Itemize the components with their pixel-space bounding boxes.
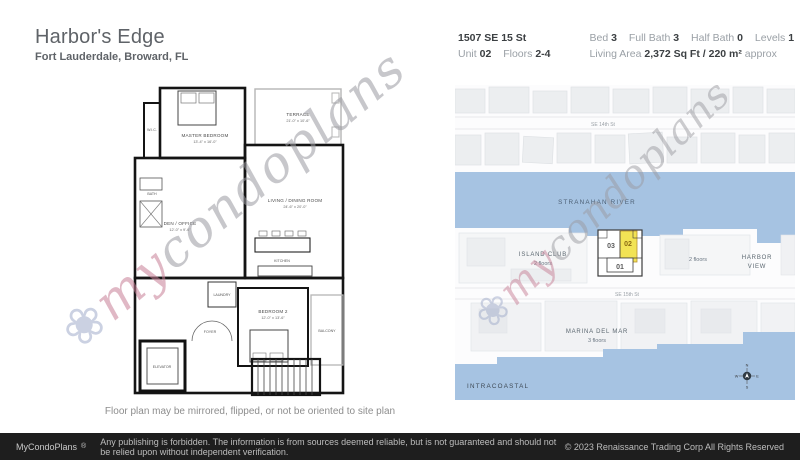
neighbor-floors: 2 floors — [689, 257, 707, 263]
harbor-view-line1: HARBOR — [742, 255, 772, 261]
kitchen-counter — [258, 266, 312, 276]
room-dims-master: 13'-4" x 16'-0" — [193, 140, 217, 144]
registered-mark: ® — [81, 443, 86, 450]
bed-label: Bed — [590, 32, 609, 44]
levels-label: Levels — [755, 32, 785, 44]
unit-info-block: 1507 SE 15 St Unit 02 Floors 2-4 Bed 3 F… — [458, 30, 800, 63]
page-title: Harbor's Edge — [35, 26, 188, 49]
compass-n: N — [746, 364, 749, 368]
compass-e: E — [756, 375, 759, 379]
island-club-block — [459, 233, 587, 283]
room-dims-living: 24'-6" x 20'-0" — [283, 205, 307, 209]
living-walls — [245, 145, 343, 278]
full-bath-value: 3 — [673, 32, 679, 44]
room-dims-terrace: 21'-0" x 10'-6" — [286, 119, 310, 123]
half-bath-label: Half Bath — [691, 32, 734, 44]
footer-bar: MyCondoPlans ® Any publishing is forbidd… — [0, 433, 800, 460]
room-label-balcony: BALCONY — [318, 329, 336, 333]
unit-03-label: 03 — [607, 243, 615, 250]
title-block: Harbor's Edge Fort Lauderdale, Broward, … — [35, 26, 188, 63]
bed2-icon — [250, 330, 288, 362]
footer-brand: MyCondoPlans — [16, 442, 77, 452]
floors-label: Floors — [503, 48, 532, 60]
plan-caption: Floor plan may be mirrored, flipped, or … — [100, 406, 400, 417]
harbor-view-line2: VIEW — [748, 264, 767, 270]
unit-label: Unit — [458, 48, 477, 60]
unit-value: 02 — [480, 48, 492, 60]
island-club-name: ISLAND CLUB — [519, 252, 567, 258]
room-label-living: LIVING / DINING ROOM — [268, 198, 323, 203]
buildings-row-two — [455, 132, 795, 165]
intracoastal-label: INTRACOASTAL — [467, 383, 529, 390]
floorplan-sheet: Harbor's Edge Fort Lauderdale, Broward, … — [0, 0, 800, 460]
room-label-master: MASTER BEDROOM — [182, 133, 229, 138]
living-area-metric: / 220 m² — [703, 48, 742, 60]
footer-disclaimer: Any publishing is forbidden. The informa… — [100, 437, 565, 457]
stats-column: Bed 3 Full Bath 3 Half Bath 0 Levels 1 L… — [590, 30, 800, 63]
terrace-outline — [255, 89, 341, 145]
unit-02-label: 02 — [624, 241, 632, 248]
room-dims-bedroom2: 12'-0" x 13'-6" — [261, 316, 285, 320]
levels-value: 1 — [788, 32, 794, 44]
site-map: SE 14th St STRANAHAN RIVER ISLAND CLUB 2… — [455, 85, 795, 400]
floor-plan-drawing: MASTER BEDROOM 13'-4" x 16'-0" TERRACE 2… — [130, 83, 345, 398]
street-label-se14: SE 14th St — [591, 122, 616, 128]
living-area-value: 2,372 Sq Ft — [644, 48, 699, 60]
marina-name: MARINA DEL MAR — [566, 329, 628, 335]
room-label-laundry: LAUNDRY — [213, 293, 231, 297]
footer-copyright: © 2023 Renaissance Trading Corp All Righ… — [565, 442, 784, 452]
half-bath-value: 0 — [737, 32, 743, 44]
page-subtitle: Fort Lauderdale, Broward, FL — [35, 51, 188, 63]
terrace-pier — [332, 127, 339, 137]
full-bath-label: Full Bath — [629, 32, 670, 44]
stool-icon — [272, 231, 280, 236]
stool-icon — [298, 231, 306, 236]
stair-treads — [258, 359, 312, 395]
stool-icon — [259, 231, 267, 236]
terrace-pier — [332, 93, 339, 103]
compass-w: W — [735, 375, 739, 379]
room-label-elevator: ELEVATOR — [153, 365, 172, 369]
stairs-outline — [252, 359, 320, 395]
room-label-bath: BATH — [147, 192, 157, 196]
floors-value: 2-4 — [535, 48, 550, 60]
living-area-approx: approx — [745, 48, 777, 60]
vanity-icon — [140, 178, 162, 190]
bed-value: 3 — [611, 32, 617, 44]
buildings-row-north — [455, 87, 795, 113]
room-label-bedroom2: BEDROOM 2 — [258, 309, 288, 314]
bed-icon — [178, 91, 216, 125]
island-club-floors: 2 floors — [534, 261, 552, 267]
den-bath-walls — [135, 158, 245, 278]
stats-row: Bed 3 Full Bath 3 Half Bath 0 Levels 1 — [590, 30, 800, 46]
compass-s: S — [746, 386, 749, 390]
site-map-drawing: SE 14th St STRANAHAN RIVER ISLAND CLUB 2… — [455, 85, 795, 400]
room-label-kitchen: KITCHEN — [274, 259, 290, 263]
room-label-wic: W.I.C. — [147, 128, 157, 132]
unit-01-label: 01 — [616, 264, 624, 271]
marina-floors: 3 floors — [588, 338, 606, 344]
kitchen-island — [255, 238, 310, 252]
address: 1507 SE 15 St — [458, 32, 526, 44]
subject-building: 03 02 01 — [598, 230, 642, 276]
room-label-foyer: FOYER — [204, 330, 217, 334]
flower-icon: ❀ — [49, 288, 120, 361]
floor-plan: MASTER BEDROOM 13'-4" x 16'-0" TERRACE 2… — [130, 83, 345, 401]
stool-icon — [285, 231, 293, 236]
room-dims-den: 12'-0" x 9'-6" — [169, 228, 191, 232]
street-label-se15: SE 15th St — [615, 292, 640, 298]
living-area-label: Living Area — [590, 48, 642, 60]
river-label: STRANAHAN RIVER — [558, 199, 636, 206]
room-label-terrace: TERRACE — [286, 112, 309, 117]
address-column: 1507 SE 15 St Unit 02 Floors 2-4 — [458, 30, 560, 63]
room-label-den: DEN / OFFICE — [164, 221, 197, 226]
living-area-row: Living Area 2,372 Sq Ft / 220 m² approx — [590, 46, 800, 62]
